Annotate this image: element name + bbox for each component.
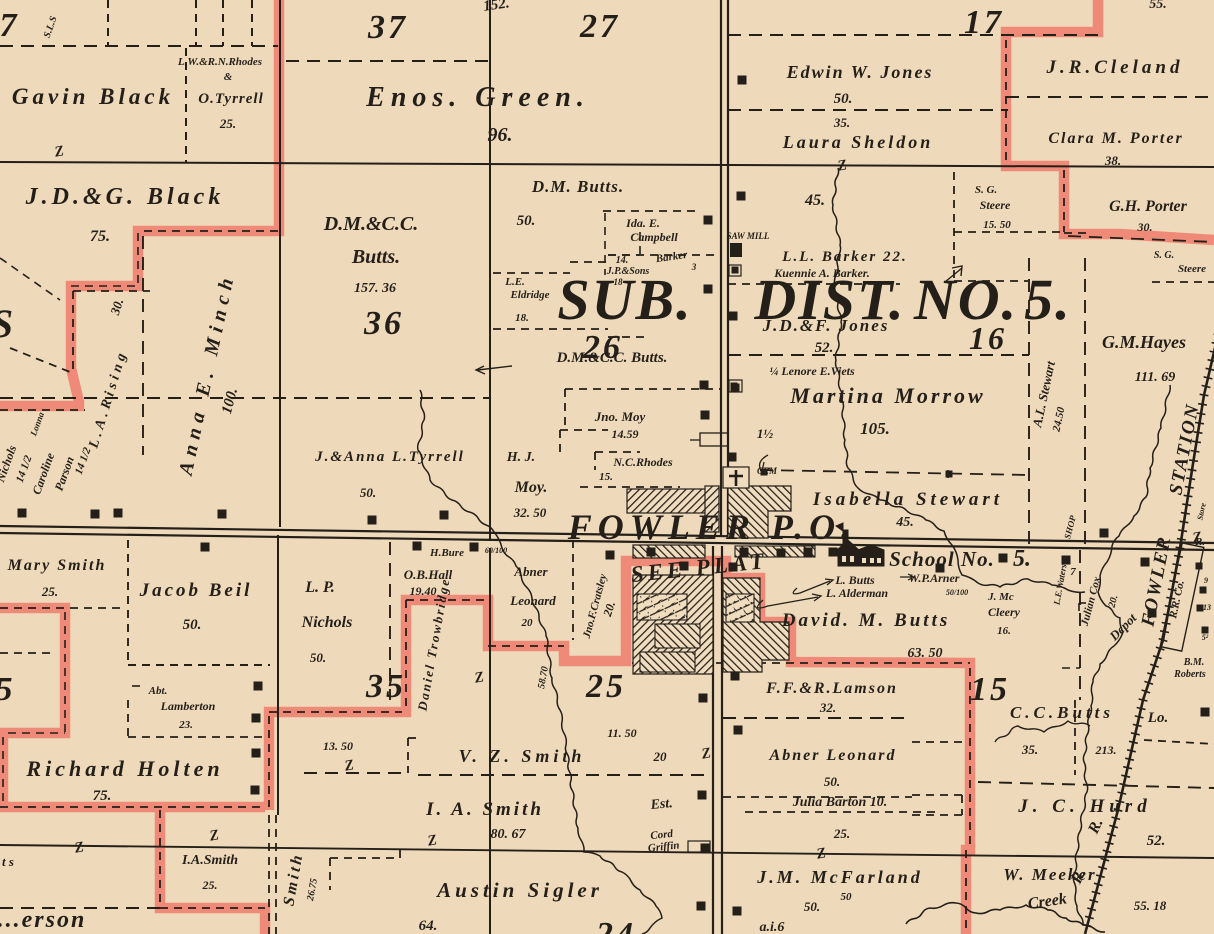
svg-text:1½: 1½ <box>757 426 774 441</box>
svg-text:55.: 55. <box>1149 0 1167 12</box>
svg-text:63. 50: 63. 50 <box>908 646 943 661</box>
svg-text:20: 20 <box>653 749 668 764</box>
svg-text:G.M.Hayes: G.M.Hayes <box>1102 332 1186 352</box>
svg-text:Steere: Steere <box>980 198 1011 212</box>
svg-text:Jacob Beil: Jacob Beil <box>139 580 253 601</box>
svg-text:Kuennie A. Barker.: Kuennie A. Barker. <box>773 266 870 280</box>
svg-text:C.C.Butts: C.C.Butts <box>1010 703 1114 722</box>
svg-text:20: 20 <box>521 617 534 629</box>
svg-text:D.M.&C.C.: D.M.&C.C. <box>323 213 418 235</box>
svg-text:111. 69: 111. 69 <box>1135 370 1175 385</box>
svg-text:L. Butts: L. Butts <box>834 573 875 587</box>
svg-text:Gavin Black: Gavin Black <box>12 84 174 109</box>
svg-text:Richard Holten: Richard Holten <box>25 756 223 781</box>
svg-text:¼ Lenore E.Viets: ¼ Lenore E.Viets <box>769 364 855 378</box>
svg-text:a.i.6: a.i.6 <box>760 920 785 934</box>
svg-text:J. Mc: J. Mc <box>987 591 1014 603</box>
svg-text:Lamberton: Lamberton <box>160 699 216 713</box>
svg-text:75.: 75. <box>90 228 110 245</box>
svg-text:NO.: NO. <box>913 267 1018 332</box>
svg-text:Cleery: Cleery <box>988 605 1021 619</box>
svg-text:Est.: Est. <box>649 796 673 813</box>
svg-text:7: 7 <box>1070 566 1076 578</box>
svg-text:Jno. Moy: Jno. Moy <box>594 409 646 424</box>
svg-text:t s: t s <box>2 854 14 869</box>
svg-text:55. 18: 55. 18 <box>1134 898 1167 913</box>
svg-text:60/100: 60/100 <box>485 546 507 555</box>
svg-text:I. A. Smith: I. A. Smith <box>425 799 544 820</box>
svg-text:L.W.&R.N.Rhodes: L.W.&R.N.Rhodes <box>177 56 262 68</box>
svg-text:L.L. Barker 22.: L.L. Barker 22. <box>781 249 907 265</box>
svg-text:D.M. Butts.: D.M. Butts. <box>531 177 624 196</box>
svg-text:25.: 25. <box>41 584 58 599</box>
svg-text:L. P.: L. P. <box>304 579 334 596</box>
svg-text:Lo.: Lo. <box>1147 710 1168 726</box>
svg-text:5.: 5. <box>1024 267 1072 332</box>
svg-text:35: 35 <box>365 668 406 705</box>
svg-text:15: 15 <box>970 671 1010 708</box>
svg-text:7: 7 <box>0 7 19 44</box>
svg-text:G.H. Porter: G.H. Porter <box>1109 198 1188 215</box>
svg-text:45.: 45. <box>895 515 914 530</box>
svg-text:Mary Smith: Mary Smith <box>7 557 107 574</box>
svg-text:25: 25 <box>585 668 626 705</box>
svg-text:64.: 64. <box>419 918 438 934</box>
svg-text:N.C.Rhodes: N.C.Rhodes <box>612 455 673 469</box>
svg-text:3: 3 <box>691 262 697 272</box>
svg-text:D.M.&C.C. Butts.: D.M.&C.C. Butts. <box>556 350 668 366</box>
svg-text:Abt.: Abt. <box>148 685 168 697</box>
svg-text:9: 9 <box>1204 576 1208 585</box>
svg-text:W.P.Arner: W.P.Arner <box>909 571 960 585</box>
svg-text:157. 36: 157. 36 <box>354 281 396 296</box>
svg-text:Enos. Green.: Enos. Green. <box>365 82 590 113</box>
svg-text:Campbell: Campbell <box>630 230 678 244</box>
svg-text:SAW MILL: SAW MILL <box>727 231 770 241</box>
svg-text:32. 50: 32. 50 <box>513 505 547 520</box>
svg-text:J.&Anna L.Tyrrell: J.&Anna L.Tyrrell <box>314 449 465 465</box>
svg-text:&: & <box>224 71 233 83</box>
svg-text:30.: 30. <box>1137 220 1153 234</box>
svg-text:24: 24 <box>595 916 636 934</box>
svg-text:Abner Leonard: Abner Leonard <box>769 747 897 764</box>
svg-text:25.: 25. <box>202 878 218 892</box>
svg-text:17: 17 <box>964 4 1004 41</box>
svg-text:Isabella Stewart: Isabella Stewart <box>812 489 1003 510</box>
svg-text:J.D.&F. Jones: J.D.&F. Jones <box>762 316 890 335</box>
svg-text:5.: 5. <box>1013 546 1031 572</box>
svg-text:37: 37 <box>367 9 408 46</box>
svg-text:11. 50: 11. 50 <box>607 726 636 740</box>
svg-text:13: 13 <box>1203 603 1211 612</box>
svg-text:School No.: School No. <box>889 547 995 571</box>
svg-text:5: 5 <box>0 671 13 708</box>
svg-text:Leonard: Leonard <box>509 593 556 608</box>
svg-text:50.: 50. <box>804 899 820 914</box>
svg-text:Roberts: Roberts <box>1173 669 1206 680</box>
svg-text:23.: 23. <box>178 719 193 731</box>
svg-text:Clara M. Porter: Clara M. Porter <box>1048 130 1183 147</box>
svg-text:J.M. McFarland: J.M. McFarland <box>756 867 923 887</box>
svg-text:FOWLER P.O.: FOWLER P.O. <box>567 507 856 547</box>
svg-text:Nichols: Nichols <box>301 614 353 631</box>
svg-text:S: S <box>0 301 13 346</box>
svg-text:O.Tyrrell: O.Tyrrell <box>198 91 264 107</box>
svg-text:Eldridge: Eldridge <box>509 289 549 301</box>
svg-text:V. Z. Smith: V. Z. Smith <box>459 746 586 766</box>
svg-text:35.: 35. <box>833 115 850 130</box>
svg-text:J.D.&G. Black: J.D.&G. Black <box>25 184 225 210</box>
svg-text:38.: 38. <box>1104 153 1121 168</box>
svg-text:50.: 50. <box>517 213 536 229</box>
svg-text:L. Alderman: L. Alderman <box>825 586 889 600</box>
svg-text:52.: 52. <box>1147 833 1166 849</box>
svg-text:35.: 35. <box>1021 742 1038 757</box>
svg-text:105.: 105. <box>860 419 890 438</box>
svg-text:Moy.: Moy. <box>514 479 548 496</box>
svg-text:50/100: 50/100 <box>946 588 968 597</box>
svg-text:18.: 18. <box>515 312 529 324</box>
svg-text:Steere: Steere <box>1178 263 1206 275</box>
svg-text:S. G.: S. G. <box>975 184 997 196</box>
svg-text:Austin Sigler: Austin Sigler <box>435 878 603 902</box>
svg-text:14.59: 14.59 <box>612 427 639 441</box>
svg-text:J.P.&Sons: J.P.&Sons <box>606 266 650 277</box>
svg-text:96.: 96. <box>488 124 513 146</box>
svg-text:50.: 50. <box>824 774 840 789</box>
svg-text:S. G.: S. G. <box>1154 250 1174 261</box>
svg-text:32.: 32. <box>819 700 836 715</box>
svg-text:18: 18 <box>614 277 624 287</box>
svg-text:50.: 50. <box>834 91 853 107</box>
svg-text:...erson: ...erson <box>0 907 86 933</box>
svg-text:I.A.Smith: I.A.Smith <box>181 853 238 868</box>
svg-text:19.40: 19.40 <box>410 584 437 598</box>
svg-text:80. 67: 80. 67 <box>491 827 527 842</box>
svg-text:50.: 50. <box>310 650 326 665</box>
svg-text:50.: 50. <box>183 617 202 633</box>
svg-text:Butts.: Butts. <box>351 246 400 268</box>
svg-text:50: 50 <box>841 891 853 903</box>
svg-text:J. C. Hurd: J. C. Hurd <box>1017 796 1151 817</box>
svg-text:15.: 15. <box>599 471 613 483</box>
svg-text:Ida. E.: Ida. E. <box>625 216 660 230</box>
svg-text:David. M. Butts: David. M. Butts <box>781 610 951 631</box>
svg-text:J.R.Cleland: J.R.Cleland <box>1046 57 1184 78</box>
svg-text:B.M.: B.M. <box>1183 657 1205 668</box>
svg-text:Edwin W. Jones: Edwin W. Jones <box>786 62 934 82</box>
svg-text:Laura Sheldon: Laura Sheldon <box>782 132 934 152</box>
svg-text:25.: 25. <box>833 826 850 841</box>
svg-text:50.: 50. <box>360 485 376 500</box>
svg-text:14.: 14. <box>616 255 629 266</box>
svg-text:27: 27 <box>579 8 620 45</box>
svg-text:Abner: Abner <box>513 564 548 579</box>
svg-text:13. 50: 13. 50 <box>323 739 353 753</box>
svg-text:25.: 25. <box>219 116 236 131</box>
svg-text:5²: 5² <box>1202 633 1209 642</box>
svg-text:F.F.&R.Lamson: F.F.&R.Lamson <box>765 680 898 697</box>
svg-text:Martina Morrow: Martina Morrow <box>789 383 985 408</box>
svg-text:H.Bure: H.Bure <box>429 547 464 559</box>
svg-text:45.: 45. <box>804 192 825 209</box>
svg-text:15. 50: 15. 50 <box>983 219 1011 231</box>
svg-text:H. J.: H. J. <box>506 450 535 465</box>
svg-text:36: 36 <box>363 305 404 342</box>
svg-text:52.: 52. <box>815 340 834 356</box>
svg-text:75.: 75. <box>93 788 112 804</box>
svg-text:L.E.: L.E. <box>504 276 525 288</box>
svg-text:16.: 16. <box>997 625 1011 637</box>
svg-text:Julia Barton 10.: Julia Barton 10. <box>792 795 888 810</box>
svg-text:213.: 213. <box>1095 743 1117 757</box>
